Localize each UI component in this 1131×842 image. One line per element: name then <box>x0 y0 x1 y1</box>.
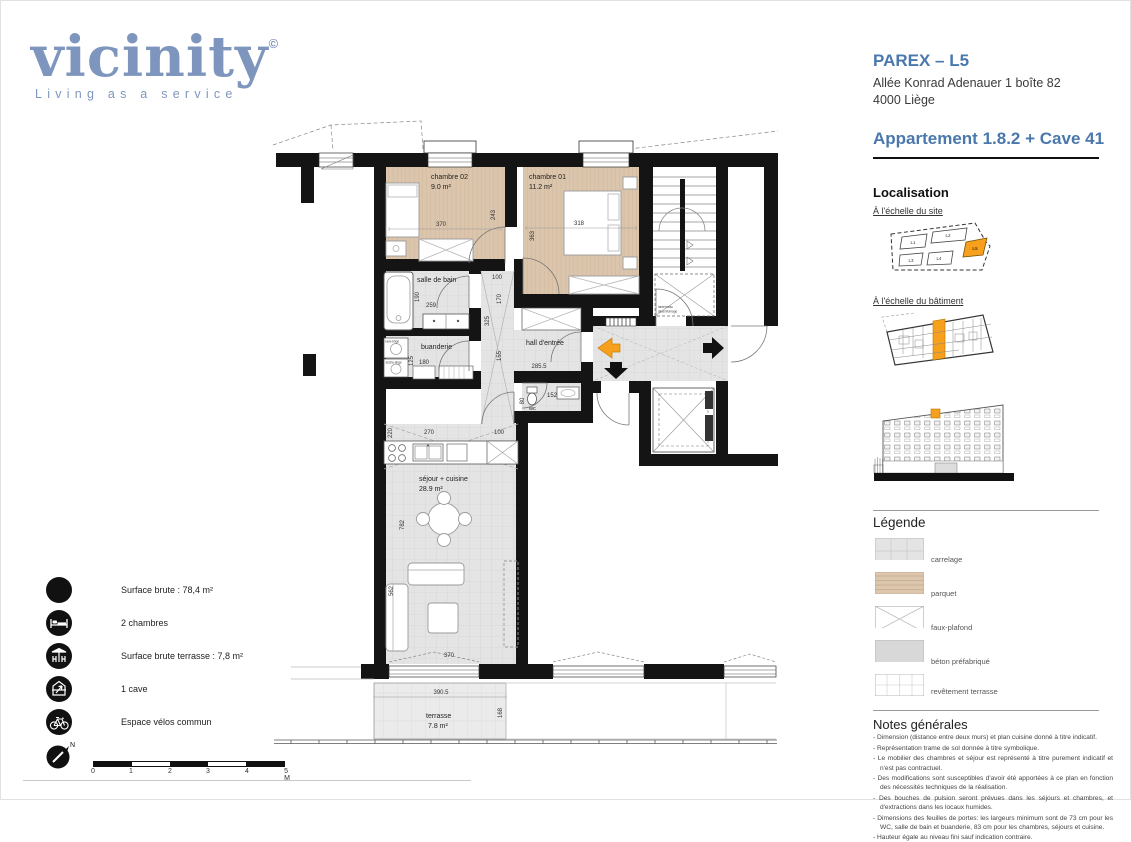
building-scale-label: À l'échelle du bâtiment <box>873 296 1113 306</box>
revetement-label: revêtement terrasse <box>931 687 998 696</box>
floor-plan: lanterneau désenfumage <box>271 119 796 774</box>
dim-kit-b: 270 <box>424 430 435 436</box>
wardrobe2 <box>419 239 473 261</box>
dim-sej-a: 782 <box>400 519 406 530</box>
dim-strip-c: 155 <box>497 350 503 361</box>
dim-ch01-h: 363 <box>530 230 536 241</box>
dim-ter-h: 168 <box>498 707 504 718</box>
dim-wc-w: 152 <box>547 393 558 399</box>
carrelage-swatch <box>875 538 924 560</box>
nightstand <box>386 241 406 256</box>
site-l5-label: L5 <box>972 246 978 251</box>
bed1 <box>564 191 621 255</box>
fact-label: 1 cave <box>121 684 148 694</box>
neighbor-window-south1 <box>553 652 644 677</box>
neighbor-window-south2 <box>724 654 776 677</box>
address-line1: Allée Konrad Adenauer 1 boîte 82 <box>873 75 1113 92</box>
ground-bar <box>874 473 1014 481</box>
site-map: L1 L2 L3 L4 L5 <box>887 219 997 277</box>
chair <box>459 513 472 526</box>
boiler-station <box>439 366 473 379</box>
elevation-unit-highlight <box>931 409 940 418</box>
boiler-unit <box>413 366 435 379</box>
dim-sej-b: 562 <box>389 585 395 596</box>
fact-label: Surface brute : 78,4 m² <box>121 585 213 595</box>
coffee-table <box>428 603 458 633</box>
elevator-room <box>653 388 714 452</box>
context-dashed-lines <box>273 121 778 151</box>
terrace-area-label: 7.8 m² <box>428 723 449 730</box>
parquet-label: parquet <box>931 589 956 598</box>
bathroom-label: salle de bain <box>417 277 456 284</box>
fact-label: Espace vélos commun <box>121 717 212 727</box>
dim-bua-h: 125 <box>409 355 415 366</box>
note-item: Dimensions des feuilles de portes: les l… <box>873 814 1113 832</box>
stair-note-line1: lanterneau <box>658 305 673 309</box>
double-sink <box>423 314 469 329</box>
bathtub <box>384 272 413 330</box>
dim-ter-w: 390.5 <box>433 690 449 696</box>
site-l2-label: L2 <box>945 233 951 238</box>
legend-item-faux-plafond: faux-plafond <box>873 606 1113 632</box>
washing-machine: lave-linge <box>384 338 408 358</box>
chair <box>417 513 430 526</box>
bedroom2-label: chambre 02 <box>431 174 468 181</box>
dim-strip-a: 170 <box>497 293 503 304</box>
faux-plafond-label: faux-plafond <box>931 623 972 632</box>
living-label: séjour + cuisine <box>419 476 468 483</box>
kitchen-column-icon <box>487 441 518 464</box>
dim-kit-a: 220 <box>388 427 394 438</box>
laundry-label: buanderie <box>421 344 452 351</box>
logo-text: vicinity <box>31 24 269 90</box>
nightstand <box>623 257 637 269</box>
project-address: Allée Konrad Adenauer 1 boîte 82 4000 Li… <box>873 75 1113 109</box>
dim-ch02-w: 370 <box>436 222 447 228</box>
wc-label: wc <box>528 406 536 412</box>
localisation-title: Localisation <box>873 185 1113 200</box>
beton-label: béton préfabriqué <box>931 657 990 666</box>
bedroom1-area: 11.2 m² <box>529 184 553 191</box>
cave-icon <box>45 675 73 703</box>
note-item: Hauteur égale au niveau fini sauf indica… <box>873 833 1113 842</box>
washer-label: lave-linge <box>386 340 400 344</box>
sheet-fold-line <box>23 780 471 781</box>
beton-swatch <box>875 640 924 662</box>
logo-wordmark: vicinity© <box>31 29 279 85</box>
dim-sdb-h: 190 <box>415 291 421 302</box>
hall-closet <box>522 308 581 330</box>
note-item: Des bouches de pulsion seront prévues da… <box>873 794 1113 812</box>
legend-item-parquet: parquet <box>873 572 1113 598</box>
apartment-facts: Surface brute : 78,4 m² 2 chambres <box>45 573 243 771</box>
fact-bedrooms: 2 chambres <box>45 606 243 639</box>
info-sidebar: PAREX – L5 Allée Konrad Adenauer 1 boîte… <box>873 51 1113 842</box>
north-label: N <box>70 742 75 749</box>
carrelage-label: carrelage <box>931 555 962 564</box>
dryer: sèche-linge <box>384 359 408 377</box>
dim-strip-b: 325 <box>485 315 491 326</box>
dim-k极c: 100 <box>494 430 505 436</box>
nightstand <box>623 177 637 189</box>
dryer-label: sèche-linge <box>386 361 403 365</box>
notes-title: Notes générales <box>873 717 1113 732</box>
scale-bar-ticks: 0 1 2 3 4 5 M <box>93 767 285 777</box>
surface-icon <box>45 576 73 604</box>
fact-cave: 1 cave <box>45 672 243 705</box>
title-divider <box>873 157 1099 159</box>
legend-title: Légende <box>873 515 1113 530</box>
dim-ch02-h: 243 <box>491 209 497 220</box>
legend-item-carrelage: carrelage <box>873 538 1113 564</box>
neighbor-window <box>319 153 353 169</box>
hall-floor <box>514 330 581 371</box>
building-elevation-sketch <box>873 395 1019 495</box>
scale-tick: 3 <box>206 768 210 775</box>
bike-icon <box>45 708 73 736</box>
scale-tick: 0 <box>91 768 95 775</box>
neighbor-terrace <box>506 683 726 739</box>
terrace-label: terrasse <box>426 713 451 720</box>
bed-icon <box>45 609 73 637</box>
bedroom2-window <box>424 141 476 167</box>
fact-terrace: Surface brute terrasse : 7,8 m² <box>45 639 243 672</box>
hall-label: hall d'entrée <box>526 340 564 347</box>
dim-strip-top: 100 <box>492 275 503 281</box>
project-title: PAREX – L5 <box>873 51 1113 71</box>
terrace-icon <box>45 642 73 670</box>
dim-wc-h: 80 <box>520 397 526 404</box>
dining-table <box>428 503 460 535</box>
dim-sdb-w: 259 <box>426 303 437 309</box>
stair-note-line2: désenfumage <box>658 310 678 314</box>
dim-bua-w: 180 <box>419 360 430 366</box>
note-item: Représentation trame de sol donnée à tit… <box>873 744 1113 753</box>
legend-item-revetement: revêtement terrasse <box>873 674 1113 696</box>
note-item: Des modifications sont susceptibles d'av… <box>873 774 1113 792</box>
door-corridor-south <box>597 393 629 425</box>
scale-tick: 1 <box>129 768 133 775</box>
north-arrow-icon: N <box>45 741 73 769</box>
note-item: Le mobilier des chambres et séjour est r… <box>873 754 1113 772</box>
sofa-top <box>408 563 464 585</box>
door-corridor-exit <box>731 326 767 362</box>
address-line2: 4000 Liège <box>873 92 1113 109</box>
bedroom1-label: chambre 01 <box>529 174 566 181</box>
fact-label: Surface brute terrasse : 7,8 m² <box>121 651 243 661</box>
notes-list: Dimension (distance entre deux murs) et … <box>873 733 1113 842</box>
dim-hall: 285.5 <box>531 364 547 370</box>
site-l4-label: L4 <box>936 256 942 261</box>
building-unit-highlight <box>933 319 945 360</box>
fact-surface: Surface brute : 78,4 m² <box>45 573 243 606</box>
dim-ch01-w: 318 <box>574 221 585 227</box>
wardrobe1 <box>569 276 639 294</box>
terrace-railing <box>274 740 777 744</box>
living-area: 28.9 m² <box>419 486 443 493</box>
site-scale-label: À l'échelle du site <box>873 206 1113 216</box>
site-l3-label: L3 <box>908 258 914 263</box>
notes-divider <box>873 710 1099 711</box>
fact-bikes: Espace vélos commun <box>45 705 243 738</box>
legend-divider <box>873 510 1099 511</box>
bedroom2-area: 9.0 m² <box>431 184 452 191</box>
parquet-swatch <box>875 572 924 594</box>
plan-sheet: vicinity© Living as a service PAREX – L5… <box>0 0 1131 800</box>
site-l1-label: L1 <box>910 240 916 245</box>
chair <box>438 492 451 505</box>
toilet <box>528 393 537 405</box>
chair <box>438 534 451 547</box>
fact-label: 2 chambres <box>121 618 168 628</box>
registered-mark: © <box>269 36 280 51</box>
vicinity-logo: vicinity© Living as a service <box>31 29 279 101</box>
scale-tick: 4 <box>245 768 249 775</box>
wc-basin <box>557 387 579 399</box>
apartment-title: Appartement 1.8.2 + Cave 41 <box>873 129 1113 149</box>
note-item: Dimension (distance entre deux murs) et … <box>873 733 1113 742</box>
faux-plafond-swatch <box>875 606 924 628</box>
scale-tick: 2 <box>168 768 172 775</box>
smoke-vent-box: lanterneau désenfumage <box>655 274 714 316</box>
revetement-swatch <box>875 674 924 696</box>
scale-bar: 0 1 2 3 4 5 M <box>93 761 285 777</box>
building-plan-sketch <box>879 310 999 384</box>
staircase: lanterneau désenfumage <box>653 177 716 316</box>
bedroom1-window <box>579 141 633 167</box>
dim-sej-w: 370 <box>444 653 455 659</box>
legend-item-beton: béton préfabriqué <box>873 640 1113 666</box>
ventilation-shelf <box>606 318 636 326</box>
